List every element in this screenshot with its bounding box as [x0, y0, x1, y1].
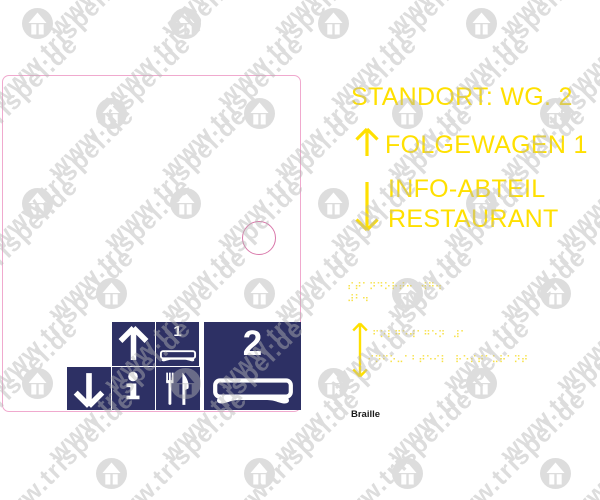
down-arrow-icon [67, 367, 111, 410]
watermark-text: www.trispel.de [495, 314, 600, 469]
up-arrow-icon [353, 126, 381, 157]
trispel-logo-icon [540, 458, 571, 489]
trispel-logo-icon [466, 368, 497, 399]
braille-location-line-1: ⠎⠞⠁⠝⠙⠕⠗⠞⠒⠀⠺⠛⠲ [347, 282, 442, 293]
next-wagon-text: FOLGEWAGEN 1 [385, 133, 588, 158]
pictogram-restaurant [156, 367, 200, 410]
trispel-logo-icon [318, 188, 349, 219]
restaurant-text: RESTAURANT [388, 207, 559, 232]
braille-label: Braille [351, 409, 380, 420]
location-text: STANDORT: WG. 2 [351, 85, 573, 110]
up-arrow-icon [112, 322, 155, 366]
info-icon [112, 367, 155, 410]
trispel-logo-icon [244, 458, 275, 489]
info-abteil-text: INFO-ABTEIL [388, 177, 546, 202]
wagon-2-number: 2 [243, 326, 262, 361]
pictogram-down-arrow [67, 367, 111, 410]
trispel-logo-icon [318, 368, 349, 399]
watermark-text: www.trispel.de [269, 0, 424, 43]
train-car-icon [211, 378, 295, 405]
pictogram-wagon-1: 1 [156, 322, 199, 366]
braille-info-line: ⠊⠝⠋⠕⠤⠁⠃⠞⠑⠊⠇⠀⠗⠑⠎⠞⠁⠥⠗⠁⠝⠞ [367, 355, 528, 366]
pictogram-wagon-2: 2 [204, 322, 301, 410]
braille-location-line-2: ⠼⠃⠲ [347, 294, 369, 305]
wagon-1-number: 1 [173, 324, 181, 339]
trispel-logo-icon [170, 8, 201, 39]
fork-knife-icon [156, 367, 200, 410]
watermark-text: www.trispel.de [325, 385, 480, 500]
watermark-text: www.trispel.de [325, 243, 480, 398]
trispel-logo-icon [22, 8, 53, 39]
watermark-text: www.trispel.de [156, 0, 311, 43]
trispel-logo-icon [540, 278, 571, 309]
mounting-hole [242, 221, 276, 255]
pictogram-up-arrow [112, 322, 155, 366]
product-proof-image: 1 2 [0, 0, 600, 500]
trispel-logo-icon [466, 8, 497, 39]
down-arrow-icon [353, 181, 381, 233]
watermark-text: www.trispel.de [43, 0, 198, 43]
watermark-text: www.trispel.de [438, 385, 593, 500]
braille-up-down-arrows-icon [350, 321, 370, 379]
watermark-text: www.trispel.de [382, 0, 537, 43]
watermark-text: www.trispel.de [551, 243, 600, 398]
trispel-logo-icon [96, 458, 127, 489]
braille-next-wagon-line: ⠋⠕⠇⠛⠑⠺⠁⠛⠑⠝⠀⠼⠁ [372, 330, 467, 341]
train-car-icon [159, 350, 197, 362]
watermark-text: www.trispel.de [551, 385, 600, 500]
watermark-text: www.trispel.de [438, 243, 593, 398]
sign-panel: 1 2 [2, 75, 301, 412]
watermark-text: www.trispel.de [0, 0, 84, 43]
trispel-logo-icon [318, 8, 349, 39]
pictogram-info [112, 367, 155, 410]
watermark-text: www.trispel.de [495, 0, 600, 43]
trispel-logo-icon [392, 458, 423, 489]
